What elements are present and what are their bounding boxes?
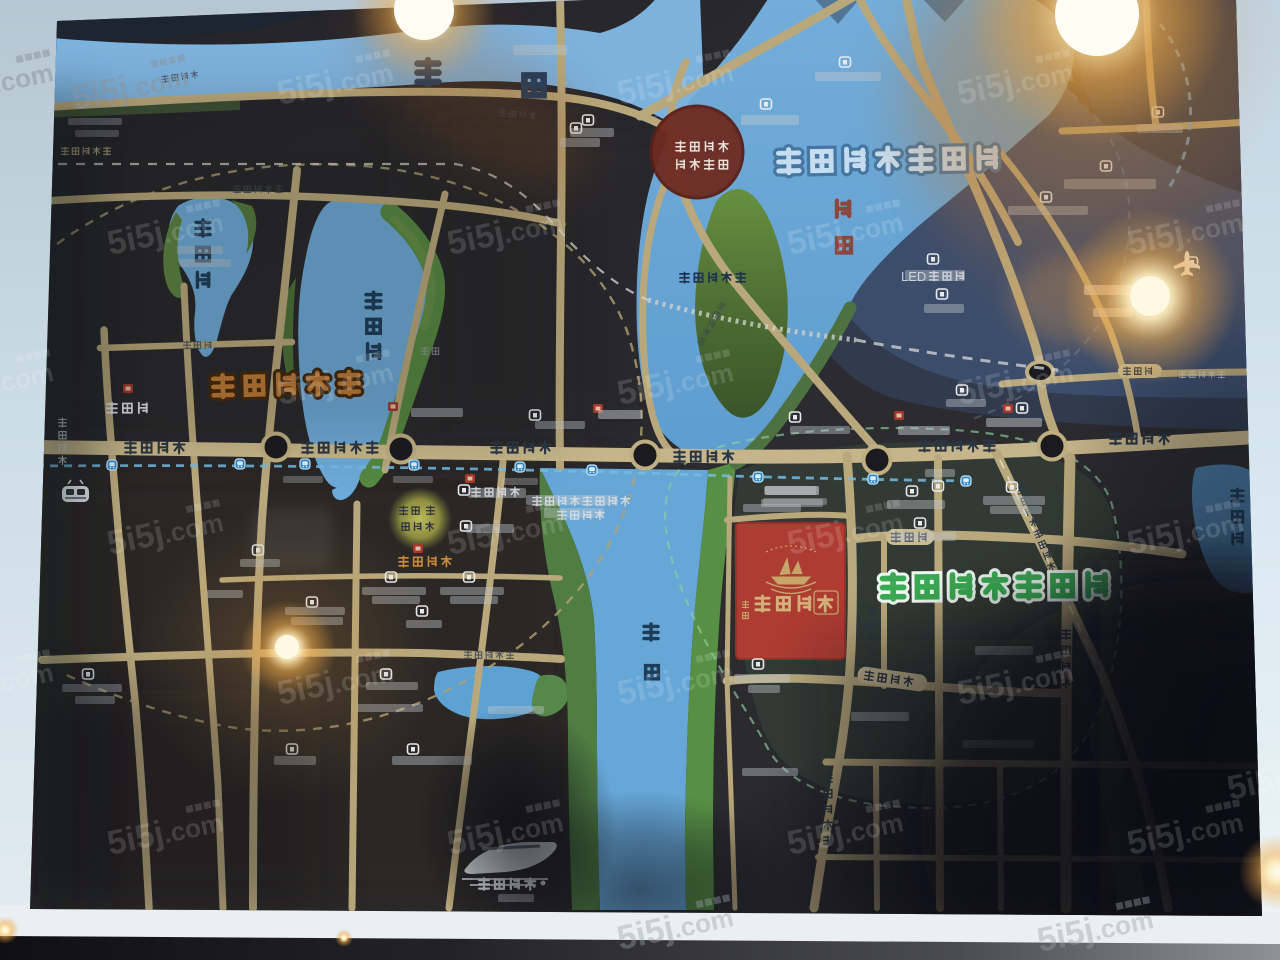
svg-text:LED: LED: [901, 269, 926, 284]
